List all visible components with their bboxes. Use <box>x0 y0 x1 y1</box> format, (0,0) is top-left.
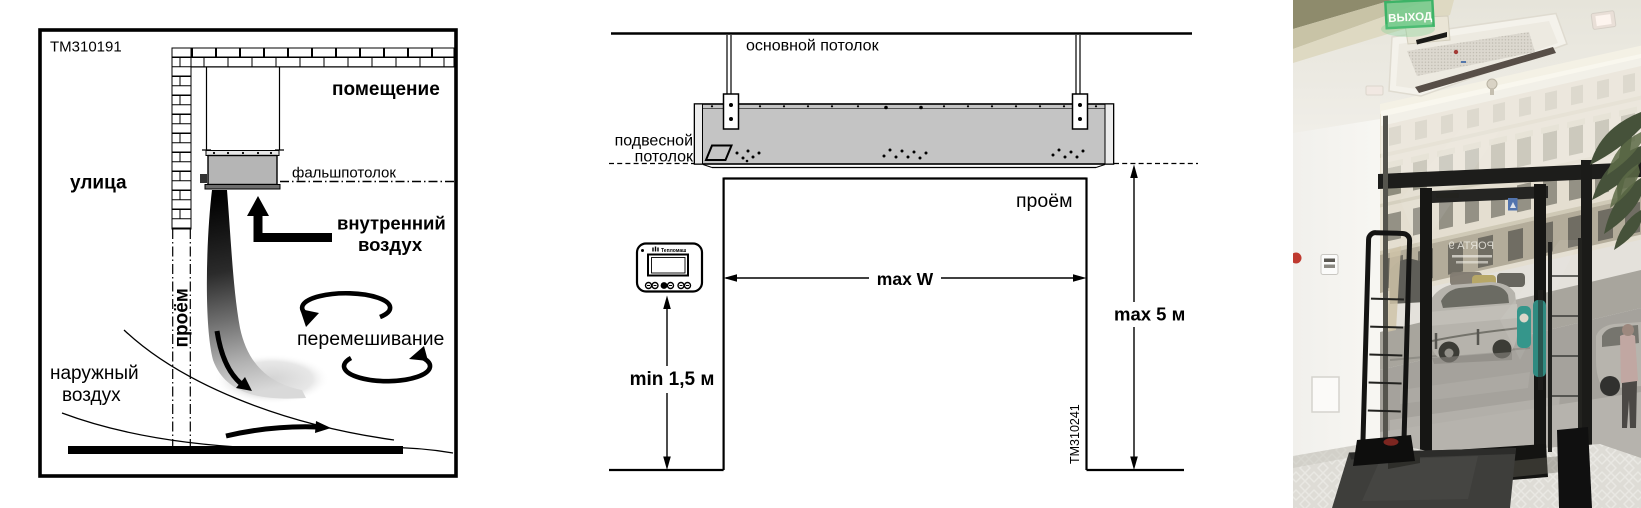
svg-text:PORTA 9: PORTA 9 <box>1449 240 1494 252</box>
